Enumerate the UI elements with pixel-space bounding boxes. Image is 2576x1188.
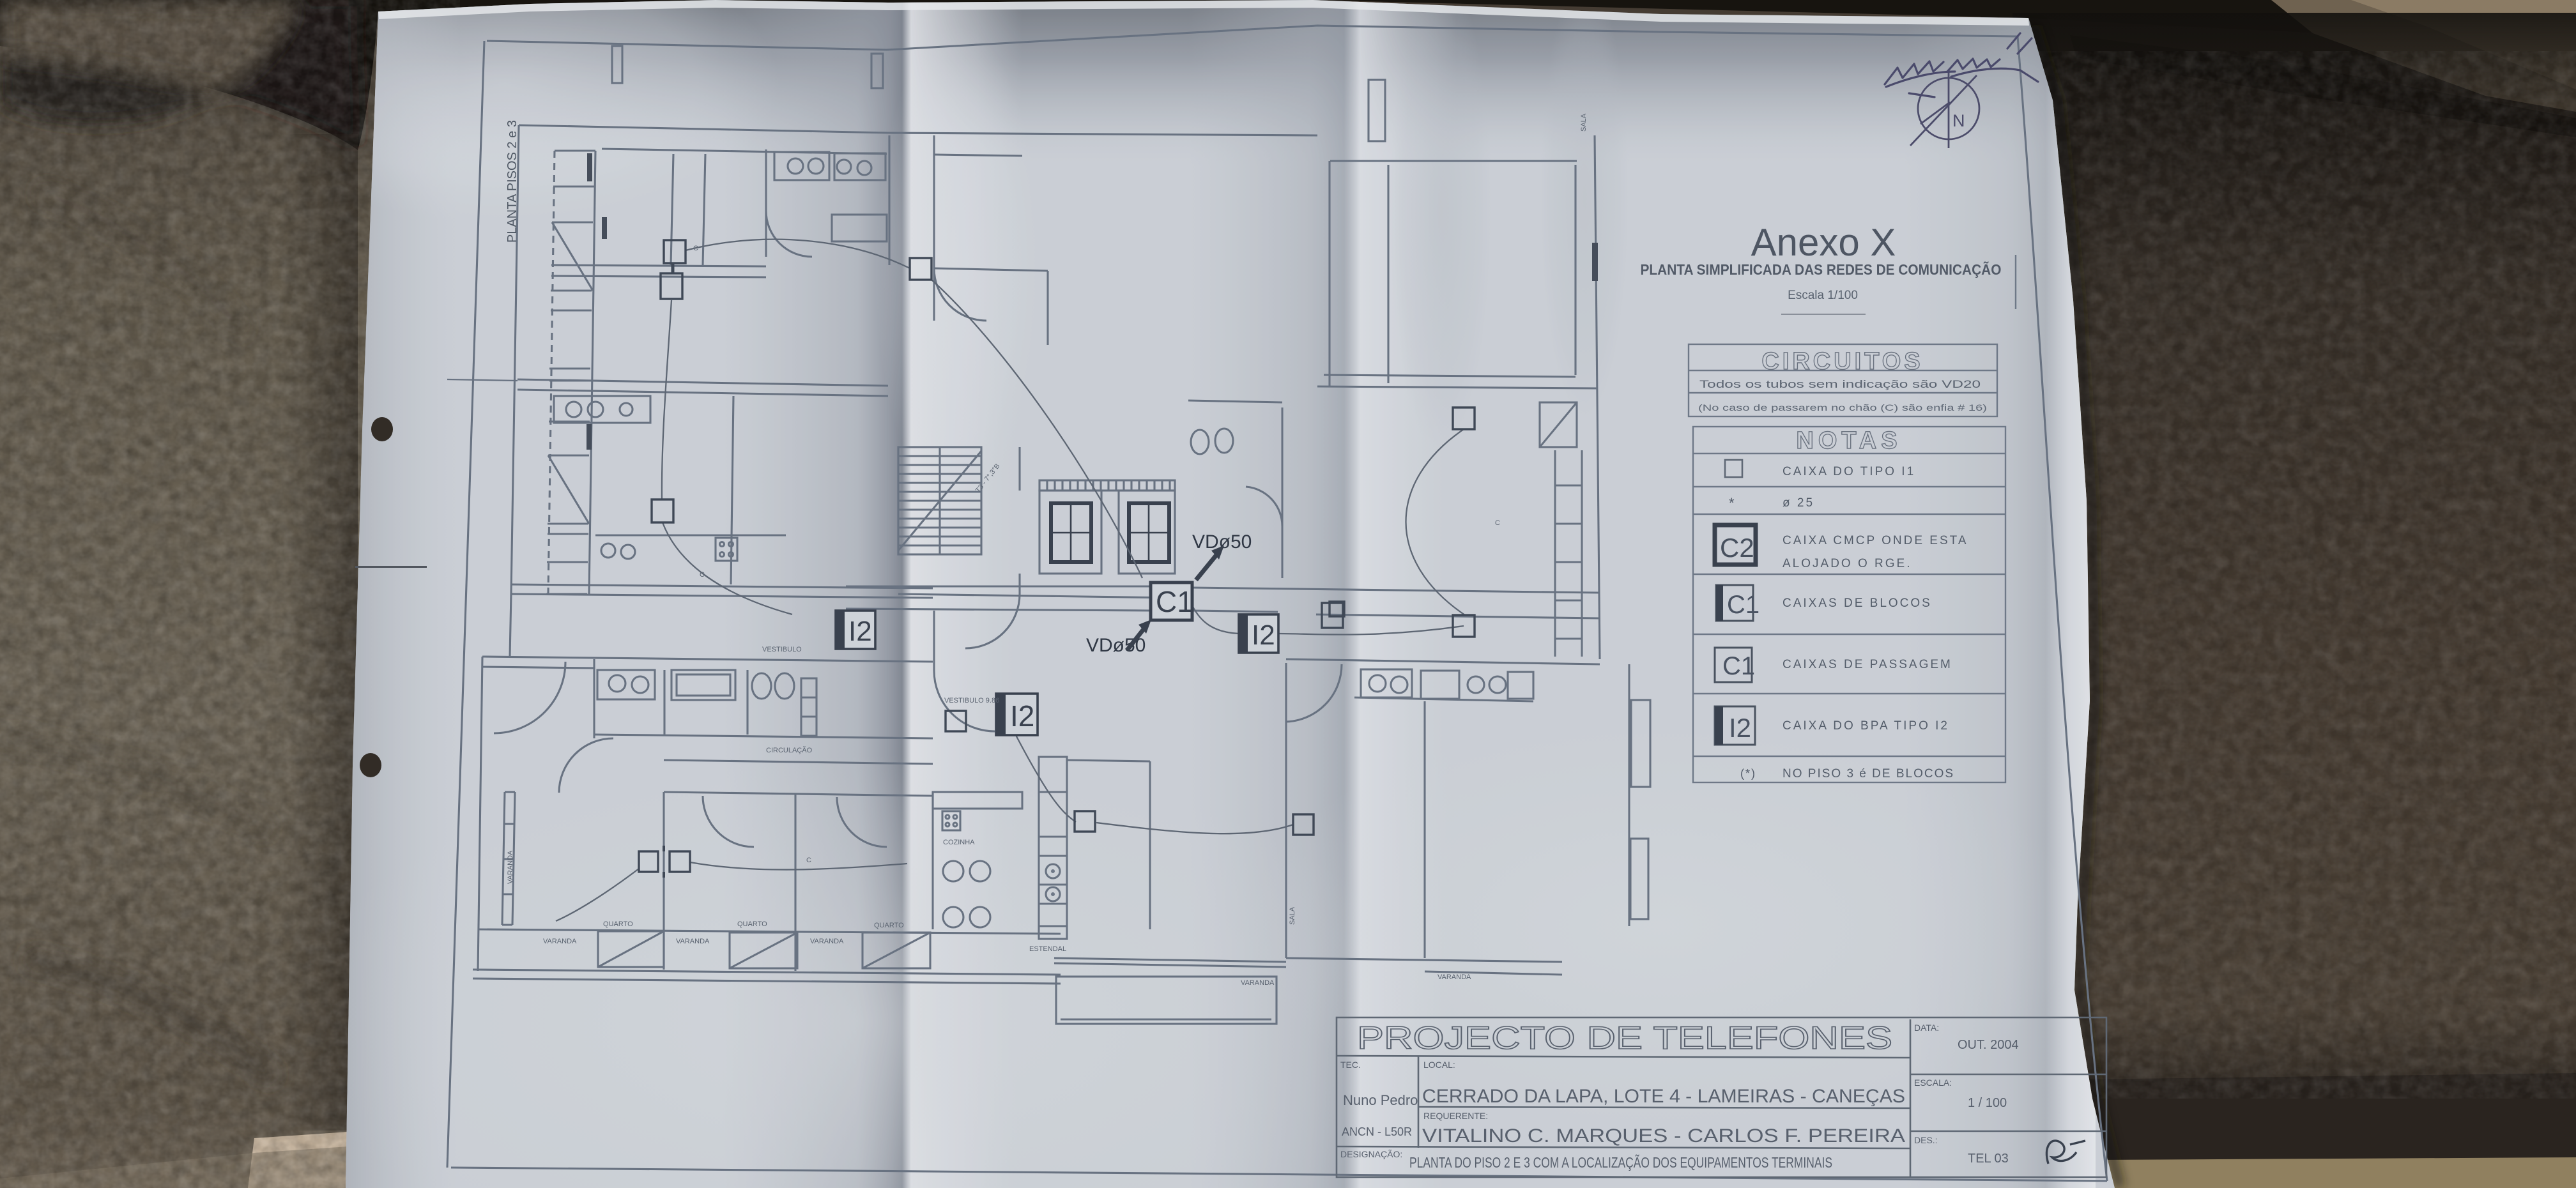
svg-text:VARANDA: VARANDA — [1241, 979, 1275, 987]
svg-text:VARANDA: VARANDA — [810, 938, 844, 945]
svg-text:DES.:: DES.: — [1914, 1135, 1938, 1145]
svg-text:NO PISO 3 é DE BLOCOS: NO PISO 3 é DE BLOCOS — [1782, 767, 1954, 781]
svg-text:C2: C2 — [1720, 533, 1754, 563]
svg-text:(*): (*) — [1740, 767, 1756, 780]
svg-text:QUARTO: QUARTO — [874, 922, 904, 929]
svg-text:C1: C1 — [1722, 652, 1755, 680]
svg-text:VARANDA: VARANDA — [676, 938, 710, 945]
svg-text:CIRCUITOS: CIRCUITOS — [1761, 348, 1923, 375]
svg-text:Escala 1/100: Escala 1/100 — [1788, 289, 1858, 302]
svg-text:SALA: SALA — [1580, 113, 1588, 132]
svg-text:OUT. 2004: OUT. 2004 — [1958, 1038, 2019, 1052]
svg-text:ESCALA:: ESCALA: — [1914, 1078, 1952, 1088]
svg-text:C: C — [1495, 519, 1500, 527]
svg-text:Nuno Pedro: Nuno Pedro — [1343, 1092, 1418, 1108]
svg-text:PLANTA SIMPLIFICADA DAS REDES: PLANTA SIMPLIFICADA DAS REDES DE COMUNIC… — [1641, 261, 2002, 278]
svg-text:I2: I2 — [1252, 620, 1275, 651]
svg-text:ANCN - L50R: ANCN - L50R — [1342, 1125, 1412, 1138]
svg-text:CIRCULAÇÃO: CIRCULAÇÃO — [766, 746, 813, 754]
svg-text:C: C — [700, 571, 705, 579]
svg-text:VITALINO C. MARQUES - CARLOS: VITALINO C. MARQUES - CARLOS F. PEREIRA — [1422, 1125, 1905, 1146]
svg-text:QUARTO: QUARTO — [737, 920, 767, 928]
svg-text:DESIGNAÇÃO:: DESIGNAÇÃO: — [1340, 1149, 1402, 1159]
svg-text:(No caso de passarem no chão (: (No caso de passarem no chão (C) são enf… — [1698, 402, 1987, 413]
svg-text:N: N — [1952, 111, 1965, 130]
svg-text:VARANDA: VARANDA — [543, 938, 577, 945]
svg-text:CAIXAS DE PASSAGEM: CAIXAS DE PASSAGEM — [1782, 658, 1952, 671]
svg-text:TEC.: TEC. — [1340, 1060, 1361, 1070]
svg-text:PLANTA PISOS 2 e 3: PLANTA PISOS 2 e 3 — [505, 120, 519, 243]
svg-text:I2: I2 — [1010, 699, 1034, 733]
svg-text:ESTENDAL: ESTENDAL — [1029, 945, 1066, 953]
svg-text:NOTAS: NOTAS — [1796, 427, 1901, 454]
svg-text:VESTIBULO 9.86: VESTIBULO 9.86 — [944, 697, 999, 704]
svg-text:DATA:: DATA: — [1914, 1023, 1939, 1033]
svg-text:COZINHA: COZINHA — [943, 839, 975, 846]
svg-text:TEL 03: TEL 03 — [1968, 1152, 2009, 1166]
svg-text:PROJECTO DE TELEFONES: PROJECTO DE TELEFONES — [1357, 1020, 1892, 1056]
svg-text:CAIXA DO BPA TIPO I2: CAIXA DO BPA TIPO I2 — [1782, 719, 1949, 733]
svg-text:*: * — [1729, 495, 1735, 511]
svg-text:C1: C1 — [1727, 591, 1759, 619]
svg-text:Anexo X: Anexo X — [1751, 221, 1896, 264]
svg-text:LOCAL:: LOCAL: — [1423, 1060, 1455, 1070]
svg-text:VARANDA: VARANDA — [1437, 973, 1471, 981]
svg-text:C1: C1 — [1156, 585, 1193, 618]
svg-text:ø 25: ø 25 — [1782, 496, 1814, 510]
svg-text:C: C — [693, 245, 698, 252]
svg-text:I2: I2 — [848, 616, 872, 647]
svg-text:VESTIBULO: VESTIBULO — [762, 646, 802, 653]
svg-text:1 / 100: 1 / 100 — [1968, 1096, 2007, 1110]
svg-text:CERRADO DA LAPA, LOTE 4 - LA: CERRADO DA LAPA, LOTE 4 - LAMEIRAS - CAN… — [1422, 1086, 1905, 1107]
svg-text:VARANDA: VARANDA — [507, 850, 514, 884]
svg-text:I2: I2 — [1729, 713, 1751, 743]
svg-text:Todos os tubos sem indicação s: Todos os tubos sem indicação são VD20 — [1699, 378, 1981, 390]
svg-text:CAIXAS DE BLOCOS: CAIXAS DE BLOCOS — [1782, 597, 1932, 610]
svg-text:CAIXA DO TIPO I1: CAIXA DO TIPO I1 — [1782, 465, 1915, 478]
svg-text:C: C — [806, 857, 811, 864]
svg-text:PLANTA DO PISO 2 E 3 COM A LOC: PLANTA DO PISO 2 E 3 COM A LOCALIZAÇÃO D… — [1409, 1154, 1832, 1171]
svg-text:SALA: SALA — [1289, 906, 1296, 925]
svg-text:REQUERENTE:: REQUERENTE: — [1423, 1111, 1488, 1121]
svg-text:QUARTO: QUARTO — [603, 920, 633, 928]
svg-text:ALOJADO O RGE.: ALOJADO O RGE. — [1782, 557, 1912, 570]
svg-text:CAIXA CMCP ONDE ESTA: CAIXA CMCP ONDE ESTA — [1782, 534, 1968, 547]
